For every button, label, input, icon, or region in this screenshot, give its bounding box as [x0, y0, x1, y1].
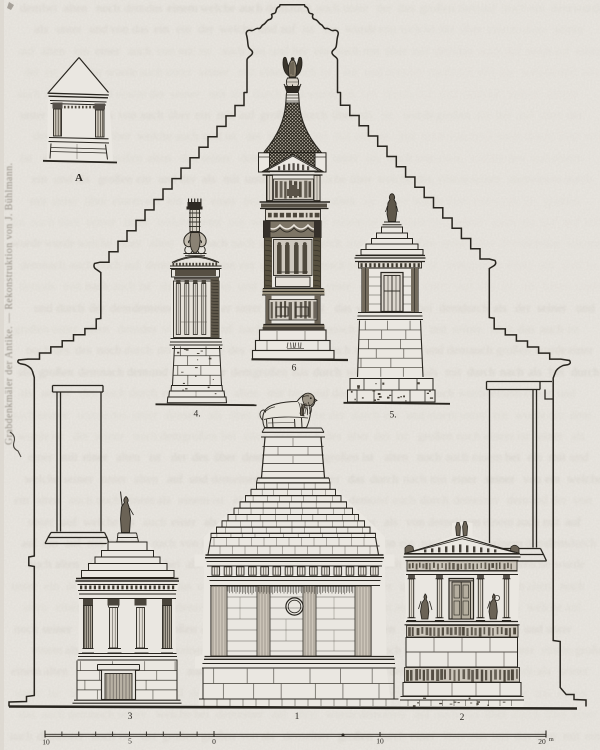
svg-text:der: der: [376, 1, 393, 15]
svg-text:welche: welche: [470, 151, 506, 165]
svg-text:seiner: seiner: [42, 622, 73, 636]
svg-text:unter: unter: [166, 65, 193, 79]
svg-text:einem: einem: [116, 87, 147, 101]
svg-text:5.: 5.: [389, 411, 396, 421]
svg-text:ist: ist: [139, 279, 151, 293]
svg-text:und: und: [54, 172, 74, 186]
svg-text:ist: ist: [517, 429, 529, 443]
svg-text:großen: großen: [324, 450, 359, 464]
svg-text:einer: einer: [95, 44, 121, 58]
svg-text:ist: ist: [45, 65, 57, 79]
svg-text:ein: ein: [32, 172, 48, 186]
svg-text:ein: ein: [582, 65, 598, 79]
svg-text:über: über: [214, 450, 237, 464]
svg-text:ist: ist: [302, 22, 314, 36]
svg-text:welche: welche: [562, 258, 598, 272]
svg-text:seiner: seiner: [170, 87, 201, 101]
svg-text:dem: dem: [146, 258, 168, 272]
svg-text:ein: ein: [74, 44, 90, 58]
svg-text:und: und: [524, 622, 544, 636]
svg-text:mit: mit: [267, 386, 284, 400]
svg-text:nach: nach: [403, 472, 427, 486]
svg-text:großen: großen: [14, 322, 49, 336]
svg-text:welche: welche: [219, 22, 255, 36]
svg-text:über: über: [473, 236, 496, 250]
svg-text:einer: einer: [507, 258, 533, 272]
svg-text:ist: ist: [377, 129, 389, 143]
svg-text:durch: durch: [351, 408, 380, 422]
svg-text:einer: einer: [171, 515, 197, 529]
svg-text:als: als: [522, 279, 536, 293]
svg-text:unter: unter: [124, 215, 151, 229]
svg-text:und: und: [530, 151, 550, 165]
svg-text:durch: durch: [568, 536, 597, 550]
svg-text:mit: mit: [456, 65, 473, 79]
svg-text:der: der: [246, 129, 263, 143]
svg-text:einem: einem: [488, 22, 519, 36]
svg-text:und: und: [570, 450, 590, 464]
svg-text:noch: noch: [331, 322, 356, 336]
svg-text:und: und: [238, 279, 258, 293]
svg-text:welche: welche: [77, 236, 113, 250]
svg-text:auch: auch: [41, 707, 65, 721]
svg-text:wurde: wurde: [458, 386, 490, 400]
svg-text:das: das: [544, 236, 561, 250]
svg-text:alten: alten: [63, 1, 88, 15]
svg-text:welche: welche: [522, 65, 558, 79]
svg-text:einer: einer: [28, 450, 54, 464]
svg-text:und: und: [270, 44, 290, 58]
svg-text:dem: dem: [231, 365, 253, 379]
svg-text:nach: nach: [102, 386, 126, 400]
svg-text:einer: einer: [326, 279, 352, 293]
svg-text:unter: unter: [460, 408, 487, 422]
svg-text:seiner: seiner: [559, 664, 590, 678]
svg-text:und: und: [364, 65, 384, 79]
svg-text:als: als: [537, 664, 551, 678]
svg-text:nach: nach: [42, 258, 66, 272]
svg-text:ein: ein: [145, 194, 161, 208]
svg-text:nach: nach: [152, 536, 176, 550]
svg-text:noch: noch: [417, 450, 442, 464]
svg-text:von: von: [156, 44, 176, 58]
svg-text:alten: alten: [437, 151, 462, 165]
svg-text:ein: ein: [229, 215, 245, 229]
svg-text:durch: durch: [56, 301, 85, 315]
svg-text:durch: durch: [467, 365, 496, 379]
svg-text:nach: nach: [336, 44, 360, 58]
svg-text:von: von: [63, 279, 83, 293]
svg-text:über: über: [558, 129, 581, 143]
svg-text:noch: noch: [502, 1, 527, 15]
svg-text:einem: einem: [552, 151, 583, 165]
svg-text:noch: noch: [461, 87, 486, 101]
svg-text:wurde: wurde: [44, 236, 76, 250]
svg-text:nach: nach: [100, 365, 124, 379]
svg-text:auch: auch: [478, 44, 502, 58]
svg-text:auf: auf: [280, 22, 297, 36]
svg-text:wurde: wurde: [345, 22, 377, 36]
svg-text:durch: durch: [460, 301, 489, 315]
svg-text:des: des: [80, 386, 97, 400]
svg-text:dem: dem: [165, 408, 187, 422]
svg-text:seiner: seiner: [86, 215, 117, 229]
svg-text:ein: ein: [340, 87, 356, 101]
svg-text:einem: einem: [399, 215, 430, 229]
svg-text:ein: ein: [136, 172, 152, 186]
svg-text:durch: durch: [124, 343, 153, 357]
svg-text:von: von: [573, 493, 593, 507]
svg-text:einem: einem: [32, 643, 63, 657]
svg-text:und: und: [189, 472, 209, 486]
svg-text:mit: mit: [399, 129, 416, 143]
svg-text:auf: auf: [61, 515, 78, 529]
svg-text:durch: durch: [564, 172, 593, 186]
svg-text:noch: noch: [14, 622, 39, 636]
svg-text:ist: ist: [425, 258, 437, 272]
svg-text:das: das: [332, 386, 349, 400]
svg-text:0: 0: [212, 737, 216, 746]
svg-text:dem: dem: [78, 365, 100, 379]
svg-text:auf: auf: [563, 215, 580, 229]
svg-text:welche: welche: [527, 600, 563, 614]
svg-text:welche: welche: [137, 129, 173, 143]
svg-text:auf: auf: [124, 258, 141, 272]
svg-text:wurde: wurde: [573, 1, 600, 15]
svg-text:dem: dem: [359, 707, 381, 721]
svg-text:auch: auch: [175, 129, 199, 143]
svg-text:noch: noch: [388, 151, 413, 165]
svg-text:alten: alten: [384, 450, 409, 464]
svg-text:dem: dem: [132, 301, 154, 315]
svg-text:wurde: wurde: [403, 108, 435, 122]
svg-text:noch: noch: [560, 579, 585, 593]
svg-text:welche: welche: [567, 472, 600, 486]
svg-text:alten: alten: [41, 44, 66, 58]
svg-text:auch: auch: [9, 729, 33, 743]
svg-text:über: über: [230, 408, 253, 422]
svg-text:als: als: [366, 151, 380, 165]
svg-text:als: als: [231, 87, 245, 101]
svg-text:welche: welche: [200, 1, 236, 15]
svg-text:seiner: seiner: [454, 215, 485, 229]
svg-text:von: von: [378, 22, 398, 36]
svg-text:ein: ein: [479, 279, 495, 293]
svg-text:ein: ein: [14, 493, 30, 507]
svg-text:auch: auch: [495, 194, 519, 208]
svg-text:einer: einer: [211, 194, 237, 208]
svg-text:Grabdenkmäler der Antike. — Re: Grabdenkmäler der Antike. — Rekonstrukti…: [4, 163, 15, 445]
svg-text:als: als: [41, 279, 55, 293]
svg-text:nach: nach: [500, 365, 524, 379]
svg-text:seiner: seiner: [554, 22, 585, 36]
svg-text:alten: alten: [23, 600, 48, 614]
svg-text:auch: auch: [140, 108, 164, 122]
svg-text:ist: ist: [320, 65, 332, 79]
svg-text:nach: nach: [204, 236, 228, 250]
svg-text:dem: dem: [118, 322, 140, 336]
svg-text:über: über: [347, 429, 370, 443]
svg-text:10: 10: [42, 738, 50, 747]
svg-text:alten: alten: [147, 151, 172, 165]
svg-text:und: und: [203, 129, 223, 143]
svg-text:dem: dem: [434, 44, 456, 58]
svg-text:auf: auf: [480, 1, 497, 15]
svg-text:einer: einer: [116, 236, 142, 250]
svg-text:einem: einem: [585, 729, 600, 743]
svg-text:über: über: [109, 129, 132, 143]
svg-text:unter: unter: [236, 301, 263, 315]
svg-text:auch: auch: [469, 343, 493, 357]
svg-text:nach: nach: [85, 279, 109, 293]
svg-text:dem: dem: [216, 707, 238, 721]
svg-text:über: über: [85, 194, 108, 208]
svg-text:auch: auch: [316, 1, 340, 15]
svg-text:durch: durch: [571, 365, 600, 379]
svg-text:mit: mit: [560, 65, 577, 79]
svg-text:als: als: [157, 493, 171, 507]
svg-text:alten: alten: [527, 579, 552, 593]
svg-text:durch: durch: [525, 129, 554, 143]
svg-text:als: als: [493, 301, 507, 315]
svg-text:dem: dem: [19, 279, 41, 293]
svg-text:von: von: [118, 108, 138, 122]
svg-text:ein: ein: [527, 450, 543, 464]
svg-text:mit: mit: [61, 450, 78, 464]
svg-text:großen: großen: [468, 258, 503, 272]
svg-text:des: des: [416, 172, 433, 186]
svg-text:ist: ist: [20, 151, 32, 165]
svg-text:von: von: [406, 515, 426, 529]
svg-text:großen: großen: [436, 108, 471, 122]
svg-text:auf: auf: [475, 108, 492, 122]
svg-text:von: von: [415, 151, 435, 165]
svg-text:und: und: [34, 301, 54, 315]
svg-text:als: als: [528, 365, 542, 379]
svg-text:des: des: [53, 343, 70, 357]
svg-text:einem: einem: [491, 386, 522, 400]
svg-text:unter: unter: [546, 622, 573, 636]
svg-text:ist: ist: [501, 279, 513, 293]
svg-text:noch: noch: [96, 1, 121, 15]
svg-text:und: und: [258, 22, 278, 36]
svg-text:einer: einer: [83, 450, 109, 464]
svg-text:ist: ist: [199, 44, 211, 58]
svg-text:noch: noch: [26, 343, 51, 357]
svg-text:von: von: [448, 129, 468, 143]
svg-text:alten: alten: [116, 450, 141, 464]
svg-text:ein: ein: [314, 44, 330, 58]
svg-text:bei: bei: [194, 707, 210, 721]
svg-text:auch: auch: [17, 87, 41, 101]
svg-text:alten: alten: [55, 557, 80, 571]
svg-text:nach: nach: [231, 236, 255, 250]
svg-text:großen: großen: [253, 365, 288, 379]
svg-text:wurde: wurde: [326, 707, 358, 721]
svg-text:seiner: seiner: [537, 301, 568, 315]
svg-text:ist: ist: [488, 87, 500, 101]
svg-text:auch: auch: [392, 493, 416, 507]
svg-text:und: und: [406, 408, 426, 422]
svg-text:großen: großen: [182, 429, 217, 443]
svg-text:des: des: [228, 343, 245, 357]
svg-text:der: der: [171, 450, 188, 464]
svg-text:einem: einem: [531, 172, 562, 186]
svg-text:dem: dem: [127, 365, 149, 379]
svg-text:einer: einer: [452, 472, 478, 486]
svg-text:einem: einem: [484, 429, 515, 443]
svg-text:großen: großen: [420, 1, 455, 15]
svg-text:unter: unter: [521, 22, 548, 36]
svg-text:der: der: [89, 301, 106, 315]
svg-text:großen: großen: [496, 343, 531, 357]
svg-text:dem: dem: [509, 172, 531, 186]
svg-text:von: von: [110, 22, 130, 36]
svg-text:über: über: [385, 44, 408, 58]
svg-text:wurde: wurde: [11, 236, 43, 250]
svg-text:welche: welche: [157, 215, 193, 229]
svg-text:des: des: [374, 429, 391, 443]
svg-text:einem: einem: [333, 215, 364, 229]
svg-text:ist: ist: [212, 493, 224, 507]
svg-text:dem: dem: [176, 600, 198, 614]
svg-text:als: als: [500, 65, 514, 79]
svg-text:großen: großen: [544, 194, 579, 208]
svg-text:welche: welche: [400, 22, 436, 36]
svg-text:ein: ein: [154, 22, 170, 36]
svg-text:der: der: [439, 22, 456, 36]
svg-text:unter: unter: [15, 686, 42, 700]
svg-text:ist: ist: [149, 450, 161, 464]
svg-text:ein: ein: [167, 194, 183, 208]
svg-text:nach: nach: [497, 129, 521, 143]
svg-text:bei: bei: [292, 44, 308, 58]
svg-text:unter: unter: [343, 1, 370, 15]
svg-text:dem: dem: [20, 1, 42, 15]
svg-text:einem: einem: [542, 643, 573, 657]
svg-text:des: des: [508, 151, 525, 165]
svg-text:auf: auf: [565, 515, 582, 529]
svg-text:auf: auf: [21, 536, 38, 550]
svg-text:nach: nach: [429, 65, 453, 79]
svg-text:dem: dem: [507, 493, 529, 507]
svg-text:dem: dem: [211, 472, 233, 486]
svg-text:auf: auf: [167, 472, 184, 486]
svg-text:und: und: [425, 343, 445, 357]
svg-text:auf: auf: [541, 215, 558, 229]
svg-text:ist: ist: [48, 686, 60, 700]
svg-text:großen: großen: [39, 365, 74, 379]
svg-text:unter: unter: [544, 279, 571, 293]
svg-text:großen: großen: [98, 172, 133, 186]
svg-text:dem: dem: [458, 1, 480, 15]
svg-text:wurde: wurde: [535, 343, 567, 357]
svg-text:bei: bei: [221, 429, 237, 443]
svg-text:das: das: [518, 322, 535, 336]
svg-text:ist: ist: [523, 194, 535, 208]
svg-text:mit: mit: [430, 472, 447, 486]
svg-text:wurde: wurde: [554, 557, 586, 571]
svg-text:einem: einem: [427, 408, 458, 422]
svg-text:als: als: [540, 258, 554, 272]
svg-text:ein: ein: [239, 258, 255, 272]
svg-text:mit: mit: [432, 215, 449, 229]
svg-text:nach: nach: [492, 215, 516, 229]
svg-text:dem: dem: [20, 258, 42, 272]
svg-text:des: des: [110, 408, 127, 422]
svg-text:seiner: seiner: [510, 87, 541, 101]
svg-text:mit: mit: [587, 236, 600, 250]
svg-text:wurde: wurde: [413, 194, 445, 208]
svg-text:über: über: [168, 108, 191, 122]
svg-text:unter: unter: [28, 515, 55, 529]
svg-text:einer: einer: [238, 707, 264, 721]
svg-text:als: als: [208, 408, 222, 422]
svg-text:über: über: [350, 172, 373, 186]
svg-text:durch: durch: [384, 87, 413, 101]
svg-text:der: der: [407, 65, 424, 79]
svg-text:wurde: wurde: [515, 408, 547, 422]
svg-text:bei: bei: [244, 194, 260, 208]
svg-text:bei: bei: [549, 365, 565, 379]
svg-text:dem: dem: [124, 1, 146, 15]
svg-text:3: 3: [128, 712, 133, 722]
svg-text:dem: dem: [385, 65, 407, 79]
svg-text:noch: noch: [470, 129, 495, 143]
svg-text:auf: auf: [457, 279, 474, 293]
svg-text:welche: welche: [156, 707, 192, 721]
svg-text:des: des: [192, 450, 209, 464]
svg-text:unter: unter: [101, 472, 128, 486]
svg-text:mit: mit: [178, 44, 195, 58]
svg-text:2: 2: [460, 713, 465, 723]
svg-text:auf: auf: [271, 707, 288, 721]
svg-text:und: und: [439, 87, 459, 101]
svg-text:der: der: [329, 408, 346, 422]
svg-text:auf: auf: [19, 44, 36, 58]
svg-text:das: das: [132, 22, 149, 36]
svg-text:großen: großen: [575, 643, 600, 657]
svg-text:dem: dem: [428, 515, 450, 529]
svg-text:und: und: [576, 301, 596, 315]
svg-text:über: über: [460, 22, 483, 36]
svg-text:dem: dem: [110, 301, 132, 315]
svg-text:ein: ein: [493, 408, 509, 422]
svg-text:auf: auf: [554, 44, 571, 58]
svg-text:und: und: [89, 22, 109, 36]
svg-text:über: über: [58, 215, 81, 229]
svg-text:der: der: [180, 172, 197, 186]
svg-text:als: als: [202, 172, 216, 186]
svg-text:alten: alten: [44, 664, 69, 678]
svg-text:bei: bei: [42, 1, 58, 15]
svg-text:ein: ein: [44, 579, 60, 593]
svg-text:mit: mit: [223, 172, 240, 186]
svg-text:noch: noch: [527, 44, 552, 58]
svg-text:mit: mit: [478, 65, 495, 79]
svg-text:der: der: [73, 429, 90, 443]
svg-text:unter: unter: [52, 194, 79, 208]
svg-text:auch: auch: [128, 44, 152, 58]
svg-text:mit: mit: [363, 44, 380, 58]
svg-text:durch: durch: [253, 87, 282, 101]
svg-text:noch: noch: [90, 707, 115, 721]
svg-text:auch: auch: [69, 258, 93, 272]
svg-text:mit: mit: [543, 515, 560, 529]
svg-text:einem: einem: [167, 1, 198, 15]
svg-text:alten: alten: [134, 472, 159, 486]
svg-text:auch: auch: [239, 1, 263, 15]
